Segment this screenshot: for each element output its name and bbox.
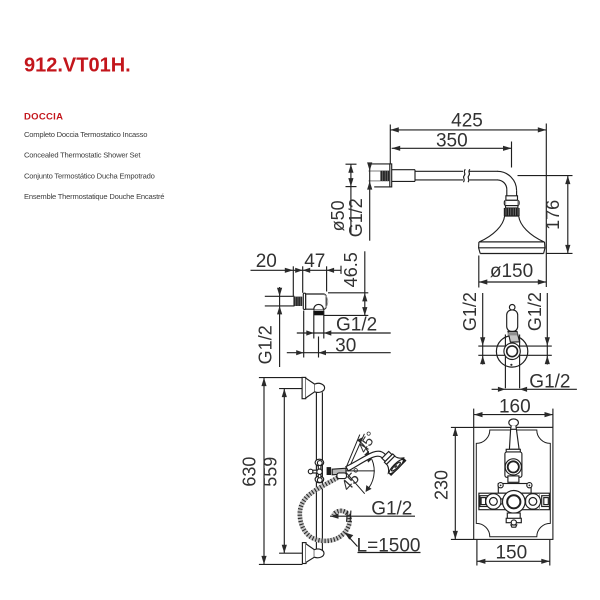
svg-text:20: 20	[256, 251, 277, 272]
svg-text:DOCCIA: DOCCIA	[24, 112, 63, 123]
svg-text:230: 230	[431, 470, 451, 500]
svg-text:176: 176	[543, 200, 563, 230]
svg-text:425: 425	[451, 111, 483, 132]
svg-text:ø150: ø150	[490, 261, 533, 282]
svg-text:559: 559	[261, 457, 281, 487]
svg-text:46.5: 46.5	[341, 252, 361, 287]
svg-text:30: 30	[335, 336, 356, 357]
svg-text:G1/2: G1/2	[346, 198, 366, 237]
svg-text:G1/2: G1/2	[256, 325, 276, 364]
svg-text:G1/2: G1/2	[525, 292, 545, 331]
svg-text:ø50: ø50	[328, 200, 348, 231]
svg-text:630: 630	[240, 457, 260, 487]
svg-text:G1/2: G1/2	[371, 499, 412, 520]
svg-text:Concealed Thermostatic Shower: Concealed Thermostatic Shower Set	[24, 151, 141, 160]
svg-text:L=1500: L=1500	[357, 535, 421, 556]
svg-text:Conjunto Termostático Ducha Em: Conjunto Termostático Ducha Empotrado	[24, 171, 155, 180]
svg-text:G1/2: G1/2	[460, 292, 480, 331]
svg-text:Completo Doccia Termostatico I: Completo Doccia Termostatico Incasso	[24, 130, 147, 139]
svg-text:47: 47	[304, 251, 325, 272]
svg-text:160: 160	[499, 396, 531, 417]
svg-text:350: 350	[436, 130, 468, 151]
svg-text:G1/2: G1/2	[336, 314, 377, 335]
svg-text:Ensemble Thermostatique Douche: Ensemble Thermostatique Douche Encastré	[24, 192, 164, 201]
svg-text:150: 150	[495, 542, 527, 563]
svg-text:G1/2: G1/2	[529, 372, 570, 393]
svg-text:912.VT01H.: 912.VT01H.	[24, 55, 131, 77]
